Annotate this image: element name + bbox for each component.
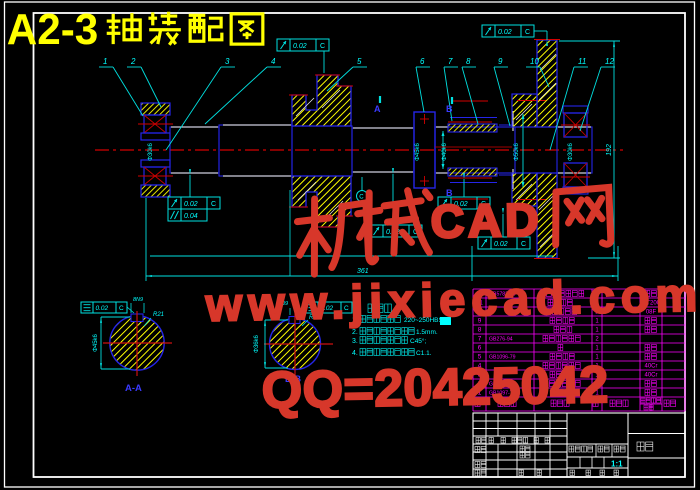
svg-text:C1.1.: C1.1. [416,350,432,357]
svg-text:GB276-94: GB276-94 [489,337,513,343]
svg-text:3: 3 [225,57,230,66]
svg-text:12: 12 [605,57,614,66]
svg-text:6: 6 [478,345,482,352]
svg-text:B: B [446,104,453,114]
svg-text:1:1: 1:1 [611,460,623,469]
svg-text:A2-3: A2-3 [7,5,99,54]
svg-text:7: 7 [478,336,482,343]
svg-text:0.04: 0.04 [184,213,198,220]
svg-text:11: 11 [578,57,586,66]
svg-text:C: C [525,29,530,36]
svg-text:Φ45k6: Φ45k6 [415,142,421,160]
svg-text:4: 4 [271,57,276,66]
svg-text:1: 1 [103,57,107,66]
svg-text:8: 8 [478,327,482,334]
svg-text:0.02: 0.02 [498,29,512,36]
svg-text:7: 7 [448,57,453,66]
svg-text:C45°;: C45°; [410,337,427,345]
svg-text:2: 2 [130,57,136,66]
svg-text:6: 6 [420,57,425,66]
svg-text:R21: R21 [153,312,164,318]
svg-text:Φ30k6: Φ30k6 [148,142,154,160]
svg-text:3.: 3. [352,338,358,345]
svg-text:8N9: 8N9 [133,297,143,303]
svg-text:A: A [374,104,381,114]
svg-text:A-A: A-A [125,383,142,394]
svg-text:40Cr: 40Cr [644,373,657,379]
svg-text:Φ36k6: Φ36k6 [254,334,260,352]
svg-text:Φ50k6: Φ50k6 [514,142,520,160]
svg-text:5: 5 [357,57,362,66]
svg-text:C: C [211,201,216,208]
svg-text:www.jixiecad.com: www.jixiecad.com [204,268,700,331]
svg-text:Φ45k6: Φ45k6 [93,333,99,351]
svg-text:C: C [320,43,325,50]
svg-text:1.5mm.: 1.5mm. [416,329,438,336]
svg-text:Φ40k6: Φ40k6 [442,142,448,160]
svg-text:0.02: 0.02 [293,43,307,50]
svg-text:QQ=20425042: QQ=20425042 [261,356,609,420]
svg-text:40Cr: 40Cr [644,364,657,370]
svg-text:Φ30k6: Φ30k6 [568,142,574,160]
svg-text:10: 10 [530,57,539,66]
svg-text:CAD: CAD [430,193,543,247]
svg-text:9: 9 [498,57,503,66]
svg-text:192: 192 [606,144,613,156]
svg-text:0.02: 0.02 [184,201,198,208]
svg-text:4.: 4. [352,350,358,357]
svg-text:8: 8 [466,57,471,66]
svg-text:0.02: 0.02 [96,305,109,312]
svg-text:2.: 2. [352,329,358,336]
svg-text:C: C [119,305,124,312]
